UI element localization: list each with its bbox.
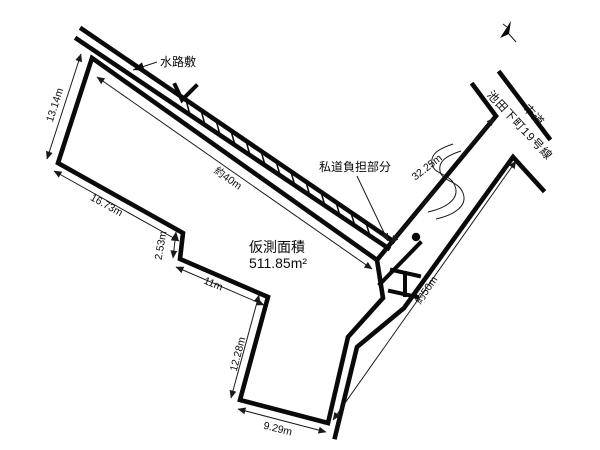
area-value: 511.85m² xyxy=(249,255,307,271)
north-arrow-icon xyxy=(500,21,516,42)
waterway-label: 水路敷 xyxy=(160,54,196,69)
dim-jog-edge: 2.53m xyxy=(153,230,170,261)
dim-west-edge: 13.14m xyxy=(44,86,66,123)
survey-plot-canvas: 水路敷 私道負担部分 仮測面積 511.85m² 市道 池田下町19号線 13.… xyxy=(0,0,600,450)
waterway-lines xyxy=(77,29,393,248)
parcel-outline xyxy=(58,58,383,423)
point-marker-dot xyxy=(412,233,420,241)
survey-plot-drawing: 水路敷 私道負担部分 仮測面積 511.85m² 市道 池田下町19号線 13.… xyxy=(0,0,600,450)
dim-south-edge: 12.28m xyxy=(228,336,249,373)
waterway-hatch-start-tick xyxy=(175,85,196,100)
private-road-boundaries xyxy=(335,85,543,437)
private-road-label: 私道負担部分 xyxy=(319,159,391,174)
area-caption: 仮測面積 xyxy=(249,239,305,255)
